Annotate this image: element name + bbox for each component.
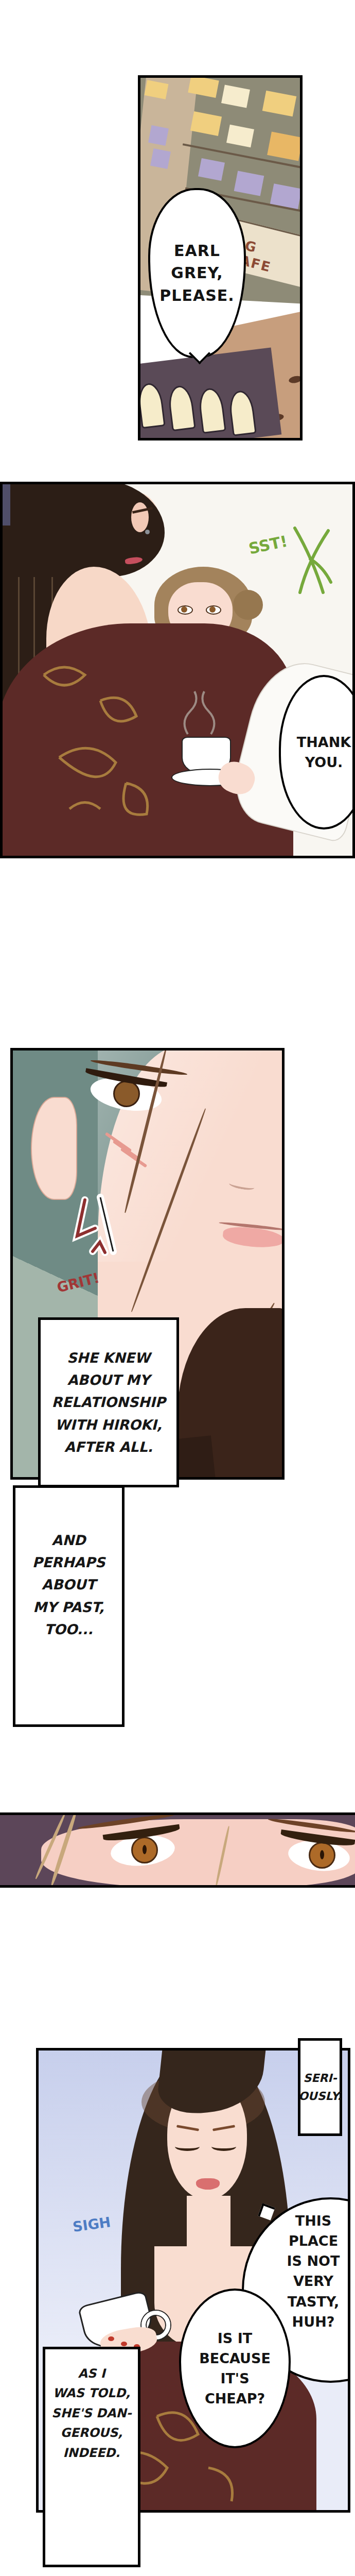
bubble-line: CHEAP?: [205, 2388, 265, 2409]
caption-line: MY PAST,: [33, 1596, 104, 1618]
window: [150, 148, 171, 169]
sfx-grit: GRIT!: [55, 1269, 101, 1295]
plant-doodle: [285, 523, 336, 598]
earring: [145, 530, 150, 534]
caption-line: PERHAPS: [32, 1551, 105, 1573]
arched-lamp: [228, 389, 257, 436]
bubble-line: PLEASE.: [159, 284, 234, 307]
caption-line: ABOUT MY: [67, 1369, 150, 1391]
bubble-line: BECAUSE: [199, 2348, 271, 2368]
bubble-line: YOU.: [305, 752, 343, 772]
bubble-line: HUH?: [275, 2312, 350, 2332]
bubble-line: IS NOT: [275, 2251, 350, 2271]
right-pupil: [320, 1850, 324, 1859]
window: [148, 125, 169, 146]
closed-eye: [175, 2142, 200, 2151]
arched-lamp: [138, 382, 166, 429]
woman2-hair-bun: [233, 590, 263, 620]
caption-line: ABOUT: [42, 1573, 96, 1596]
caption-line: WAS TOLD,: [53, 2383, 131, 2403]
caption-dangerous: AS I WAS TOLD, SHE'S DAN- GEROUS, INDEED…: [43, 2347, 140, 2567]
downlight: [288, 375, 303, 384]
bubble-line: THIS: [275, 2211, 350, 2231]
caption-line: AFTER ALL.: [64, 1436, 153, 1458]
caption-line: AND: [52, 1529, 86, 1551]
caption-she-knew: SHE KNEW ABOUT MY RELATIONSHIP WITH HIRO…: [38, 1317, 179, 1487]
bubble-line: TASTY,: [275, 2292, 350, 2312]
sfx-sigh: SIGH: [72, 2214, 112, 2235]
nail-polish: [108, 2336, 114, 2341]
bubble-line: PLACE: [275, 2231, 350, 2251]
steam: [172, 690, 244, 737]
panel-cafe-exterior: NG CAFE EARL GREY, PLEASE.: [138, 75, 303, 440]
lamp-wall: [138, 348, 281, 440]
bubble-line: THANK: [297, 732, 351, 752]
woman2-iris: [209, 606, 216, 613]
caption-line: WITH HIROKI,: [55, 1414, 162, 1436]
arched-lamp: [167, 384, 196, 431]
caption-line: GEROUS,: [61, 2423, 123, 2443]
ear: [31, 1097, 77, 1200]
caption-line: SHE'S DAN-: [51, 2403, 131, 2423]
eye-iris: [113, 1080, 140, 1107]
caption-line: OUSLY.: [298, 2087, 342, 2105]
caption-line: AS I: [78, 2364, 105, 2383]
closed-eye: [211, 2142, 236, 2151]
bubble-line: IT'S: [220, 2368, 249, 2388]
bubble-line: EARL: [174, 240, 220, 262]
bubble-line: GREY,: [171, 262, 223, 284]
woman2-iris: [181, 606, 187, 613]
arched-lamp: [198, 387, 226, 434]
caption-my-past: AND PERHAPS ABOUT MY PAST, TOO...: [13, 1485, 125, 1727]
lips-open: [196, 2178, 220, 2190]
bubble-line: IS IT: [218, 2328, 252, 2348]
caption-seriously: SERI- OUSLY.: [298, 2038, 342, 2136]
caption-line: TOO...: [44, 1618, 93, 1640]
caption-line: SHE KNEW: [67, 1347, 150, 1369]
panel-glaring-eyes: [0, 1812, 355, 1888]
caption-line: INDEED.: [63, 2443, 120, 2463]
sfx-sst: SST!: [247, 532, 289, 557]
caption-line: SERI-: [303, 2069, 336, 2087]
manga-page: NG CAFE EARL GREY, PLEASE.: [0, 0, 355, 2576]
nail-polish: [121, 2342, 127, 2346]
bubble-line: VERY: [275, 2271, 350, 2291]
panel-tea-served: SST! THANK YOU.: [0, 482, 355, 858]
grit-symbol: [64, 1190, 121, 1272]
caption-line: RELATIONSHIP: [51, 1391, 165, 1413]
left-pupil: [143, 1845, 147, 1854]
woman1-ear: [131, 502, 149, 532]
